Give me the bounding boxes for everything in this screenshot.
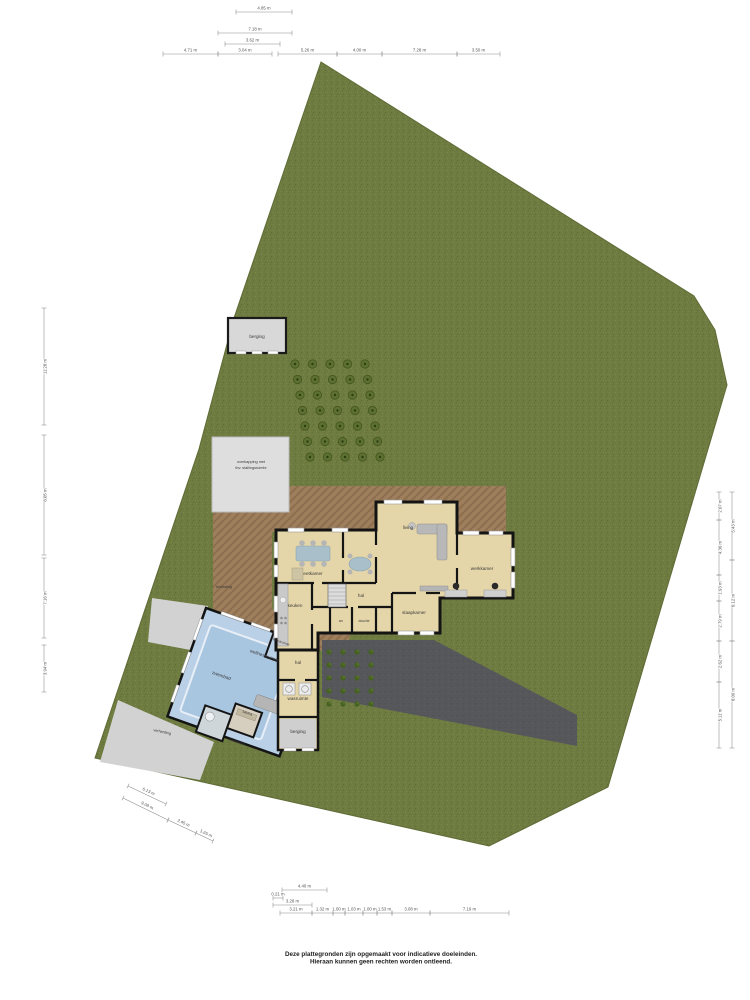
dimension-label: 0.21 m	[271, 891, 285, 896]
hob-burner	[284, 622, 287, 625]
tree-icon	[306, 453, 314, 461]
dimension: 8.09 m	[730, 641, 736, 748]
tree-center	[311, 363, 313, 365]
tree-icon	[368, 406, 376, 414]
dimension: 4.36 m	[717, 520, 723, 575]
tree-icon	[371, 422, 379, 430]
dimension-tick	[167, 818, 169, 823]
dimension: 5.26 m	[278, 47, 337, 56]
dimension-label: 4.40 m	[298, 883, 312, 888]
dimension-label: 1.65 m	[199, 828, 213, 838]
window	[236, 351, 246, 354]
tree-icon	[328, 375, 336, 383]
dimension-tick	[165, 802, 167, 807]
chair	[299, 561, 305, 567]
plant-highlight	[357, 650, 360, 653]
plant-highlight	[357, 663, 360, 666]
tree-center	[356, 425, 358, 427]
dimension-tick	[212, 839, 214, 844]
plant-highlight	[329, 689, 332, 692]
tree-icon	[298, 406, 306, 414]
plant-icon	[368, 649, 373, 654]
room-label: keuken	[288, 603, 303, 608]
dimension-label: 7.19 m	[463, 906, 477, 911]
tree-center	[299, 394, 301, 396]
dimension-label: 1.32 m	[316, 906, 330, 911]
desk	[445, 590, 467, 597]
dimension-label: 5.26 m	[301, 47, 315, 52]
dimension-label: 3.62 m	[246, 37, 260, 42]
tree-center	[301, 409, 303, 411]
dimension: 2.07 m	[717, 492, 723, 520]
tree-icon	[303, 437, 311, 445]
room-label: berging	[290, 729, 306, 734]
room-label: eetkamer	[303, 571, 323, 576]
dimension: 1.53 m	[377, 906, 392, 915]
hob-burner	[280, 622, 283, 625]
tree-center	[314, 378, 316, 380]
dimension-label: 3.04 m	[238, 47, 252, 52]
plant-highlight	[343, 689, 346, 692]
dimension: 3.08 m	[392, 906, 430, 915]
dimension: 6.12 m	[730, 560, 736, 641]
dimension-label: 1.03 m	[347, 906, 361, 911]
room-label: hal	[358, 593, 364, 598]
tree-center	[309, 456, 311, 458]
tree-icon	[316, 406, 324, 414]
plant-highlight	[343, 663, 346, 666]
tree-center	[304, 425, 306, 427]
window	[252, 351, 262, 354]
plant-highlight	[329, 676, 332, 679]
tree-center	[344, 456, 346, 458]
site-plan: livingeetkamerkeukenhalwcdoucheslaapkame…	[0, 0, 750, 1000]
tree-icon	[333, 406, 341, 414]
dimension: 4.85 m	[236, 5, 292, 14]
dimension-label: 3.08 m	[404, 906, 418, 911]
tree-icon	[336, 422, 344, 430]
plant-highlight	[343, 676, 346, 679]
disclaimer-line-1: Deze plattegronden zijn opgemaakt voor i…	[285, 951, 477, 958]
plant-highlight	[357, 676, 360, 679]
tree-icon	[291, 360, 299, 368]
round-table	[349, 557, 371, 571]
dimension-label: 4.36 m	[718, 541, 723, 555]
plant-highlight	[357, 689, 360, 692]
chair	[348, 554, 353, 559]
chair	[321, 540, 327, 546]
tree-center	[334, 394, 336, 396]
chair	[348, 570, 353, 575]
sink	[280, 597, 286, 603]
plant-icon	[354, 675, 359, 680]
tree-icon	[296, 391, 304, 399]
tree-center	[366, 378, 368, 380]
dimension-label: 3.50 m	[472, 47, 486, 52]
washer	[283, 683, 295, 695]
dimension: 7.16 m	[42, 558, 48, 638]
tree-icon	[338, 437, 346, 445]
room-label: wasruimte	[288, 696, 309, 701]
window	[302, 748, 314, 751]
tree-center	[369, 394, 371, 396]
plant-icon	[368, 675, 373, 680]
dimension-label: 6.12 m	[731, 594, 736, 608]
disclaimer-line-2: Hieraan kunnen geen rechten worden ontle…	[310, 959, 452, 966]
dimension: 0.21 m	[271, 891, 285, 900]
dryer	[299, 683, 311, 695]
dimension: 1.65 m	[195, 828, 214, 843]
tree-center	[359, 440, 361, 442]
dimension: 3.21 m	[280, 906, 312, 915]
dimension-label: 4.85 m	[257, 5, 271, 10]
dimension-label: 8.09 m	[731, 688, 736, 702]
tree-center	[321, 425, 323, 427]
plant-icon	[340, 688, 345, 693]
dimension: 8.05 m	[42, 435, 48, 555]
tree-icon	[326, 360, 334, 368]
tree-center	[316, 394, 318, 396]
plant-icon	[326, 649, 331, 654]
tree-center	[294, 363, 296, 365]
tree-icon	[343, 360, 351, 368]
stairs	[328, 584, 346, 607]
dimension: 1.93 m	[717, 575, 723, 601]
tree-center	[379, 456, 381, 458]
room-label: douche	[358, 619, 369, 623]
tree-icon	[301, 422, 309, 430]
dimension: 3.62 m	[225, 37, 280, 46]
dimension: 7.28 m	[382, 47, 457, 56]
tree-icon	[318, 422, 326, 430]
kitchen-counter	[278, 584, 288, 646]
plant-highlight	[371, 663, 374, 666]
room-label: overkapping met	[237, 460, 266, 464]
dimension-tick	[195, 831, 197, 836]
dimension-label: 1.00 m	[332, 906, 346, 911]
floorplan-page: livingeetkamerkeukenhalwcdoucheslaapkame…	[0, 0, 750, 1000]
plant-icon	[340, 675, 345, 680]
corner-sofa	[437, 524, 447, 560]
disclaimer: Deze plattegronden zijn opgemaakt voor i…	[285, 951, 477, 966]
dimension: 1.00 m	[363, 906, 377, 915]
tree-icon	[351, 406, 359, 414]
chair	[310, 561, 316, 567]
dimension-label: 7.28 m	[413, 47, 427, 52]
dimension-label: 1.53 m	[378, 906, 392, 911]
window	[284, 748, 296, 751]
dimension-label: 4.00 m	[353, 47, 367, 52]
room-label: living	[403, 525, 414, 530]
tree-center	[331, 378, 333, 380]
dimension: 2.79 m	[717, 601, 723, 641]
dimension-label: 3.94 m	[43, 662, 48, 676]
tree-center	[341, 440, 343, 442]
dimension: 4.00 m	[337, 47, 382, 56]
plant-icon	[326, 675, 331, 680]
tree-icon	[366, 391, 374, 399]
plant-icon	[326, 688, 331, 693]
dimension-label: 6.13 m	[142, 786, 156, 796]
dimension-tick	[127, 784, 129, 789]
chair	[299, 540, 305, 546]
hob-burner	[284, 617, 287, 620]
tree-center	[364, 363, 366, 365]
plant-icon	[368, 688, 373, 693]
desk	[484, 590, 506, 597]
room-label: bestrating	[216, 585, 232, 589]
plant-highlight	[343, 650, 346, 653]
dimension-label: 2.62 m	[718, 655, 723, 669]
plant-highlight	[329, 702, 332, 705]
tree-icon	[293, 375, 301, 383]
tree-icon	[373, 437, 381, 445]
tree-center	[346, 363, 348, 365]
tree-center	[354, 409, 356, 411]
tree-icon	[353, 422, 361, 430]
tree-center	[351, 394, 353, 396]
dimension-label: 7.18 m	[248, 26, 262, 31]
dimension: 1.32 m	[312, 906, 333, 915]
tree-center	[306, 440, 308, 442]
dimension: 2.45 m	[167, 818, 197, 836]
plant-icon	[326, 701, 331, 706]
closet	[292, 568, 303, 580]
office-chair	[453, 583, 460, 590]
room-label: slaapkamer	[402, 610, 426, 615]
office-chair	[492, 583, 499, 590]
dimension-tick	[122, 796, 124, 800]
dimension-label: 7.16 m	[43, 591, 48, 605]
tree-icon	[363, 375, 371, 383]
room-label: wc	[339, 619, 343, 623]
dimension: 5.43 m	[730, 492, 736, 560]
dimension-label: 2.79 m	[718, 614, 723, 628]
tree-center	[326, 456, 328, 458]
tree-center	[296, 378, 298, 380]
plant-icon	[340, 701, 345, 706]
dimension: 7.18 m	[218, 26, 292, 35]
tv-cabinet	[420, 586, 448, 591]
dimension-label: 2.07 m	[718, 499, 723, 513]
tree-icon	[331, 391, 339, 399]
dimension-label: 11.28 m	[43, 358, 48, 374]
plant-icon	[354, 701, 359, 706]
plant-highlight	[371, 650, 374, 653]
tree-icon	[356, 437, 364, 445]
chair	[368, 570, 373, 575]
room-label: werkkamer	[471, 566, 494, 571]
dimension-label: 3.21 m	[289, 906, 303, 911]
dimension-label: 5.43 m	[731, 519, 736, 533]
plant-icon	[354, 662, 359, 667]
plant-highlight	[329, 663, 332, 666]
dimension: 7.19 m	[430, 906, 509, 915]
dimension: 5.11 m	[717, 682, 723, 748]
dimension: 3.04 m	[218, 47, 272, 56]
tree-icon	[348, 391, 356, 399]
dimension: 1.03 m	[345, 906, 363, 915]
tree-center	[319, 409, 321, 411]
dimension: 11.28 m	[42, 308, 48, 425]
dimension-label: 3.28 m	[286, 898, 300, 903]
plant-icon	[340, 649, 345, 654]
dimension-label: 1.00 m	[363, 906, 377, 911]
tree-center	[376, 440, 378, 442]
tree-center	[371, 409, 373, 411]
dimension-label: 5.11 m	[718, 708, 723, 721]
tree-center	[329, 363, 331, 365]
dimension-label: 2.45 m	[177, 818, 191, 828]
room-label: tbv. stallingsruimte	[235, 466, 266, 470]
tree-center	[361, 456, 363, 458]
plant-highlight	[357, 702, 360, 705]
dimension: 3.94 m	[42, 645, 48, 692]
dimension-label: 1.93 m	[718, 581, 723, 595]
tree-center	[339, 425, 341, 427]
plant-highlight	[371, 676, 374, 679]
plant-highlight	[343, 702, 346, 705]
tree-icon	[308, 360, 316, 368]
dimension: 4.71 m	[163, 47, 218, 56]
dimension: 3.50 m	[457, 47, 500, 56]
dimension-label: 8.05 m	[43, 488, 48, 502]
tree-icon	[341, 453, 349, 461]
tree-center	[349, 378, 351, 380]
hob-burner	[280, 617, 283, 620]
tree-icon	[313, 391, 321, 399]
tree-icon	[358, 453, 366, 461]
room-label: hal	[295, 660, 301, 665]
plant-icon	[368, 662, 373, 667]
plant-icon	[340, 662, 345, 667]
dining-table	[296, 546, 330, 561]
plant-highlight	[329, 650, 332, 653]
dimension: 1.00 m	[332, 906, 346, 915]
plant-icon	[354, 649, 359, 654]
plant-highlight	[371, 689, 374, 692]
tree-icon	[376, 453, 384, 461]
tree-center	[324, 440, 326, 442]
plant-highlight	[371, 702, 374, 705]
chair	[368, 554, 373, 559]
dimension: 4.40 m	[282, 883, 327, 892]
tree-icon	[311, 375, 319, 383]
tree-icon	[361, 360, 369, 368]
plant-icon	[354, 688, 359, 693]
dimension-label: 4.71 m	[184, 47, 198, 52]
tree-icon	[323, 453, 331, 461]
tree-icon	[321, 437, 329, 445]
chair	[321, 561, 327, 567]
tree-center	[336, 409, 338, 411]
garden-area	[95, 62, 727, 846]
chair	[310, 540, 316, 546]
tree-center	[374, 425, 376, 427]
room-label: berging	[249, 334, 265, 339]
plant-icon	[326, 662, 331, 667]
outbuilding-overkapping	[212, 437, 289, 512]
dimension: 9.08 m	[122, 796, 169, 822]
plant-icon	[368, 701, 373, 706]
dimension: 2.62 m	[717, 641, 723, 682]
window	[268, 351, 278, 354]
tree-icon	[346, 375, 354, 383]
dimension-label: 9.08 m	[140, 800, 154, 810]
